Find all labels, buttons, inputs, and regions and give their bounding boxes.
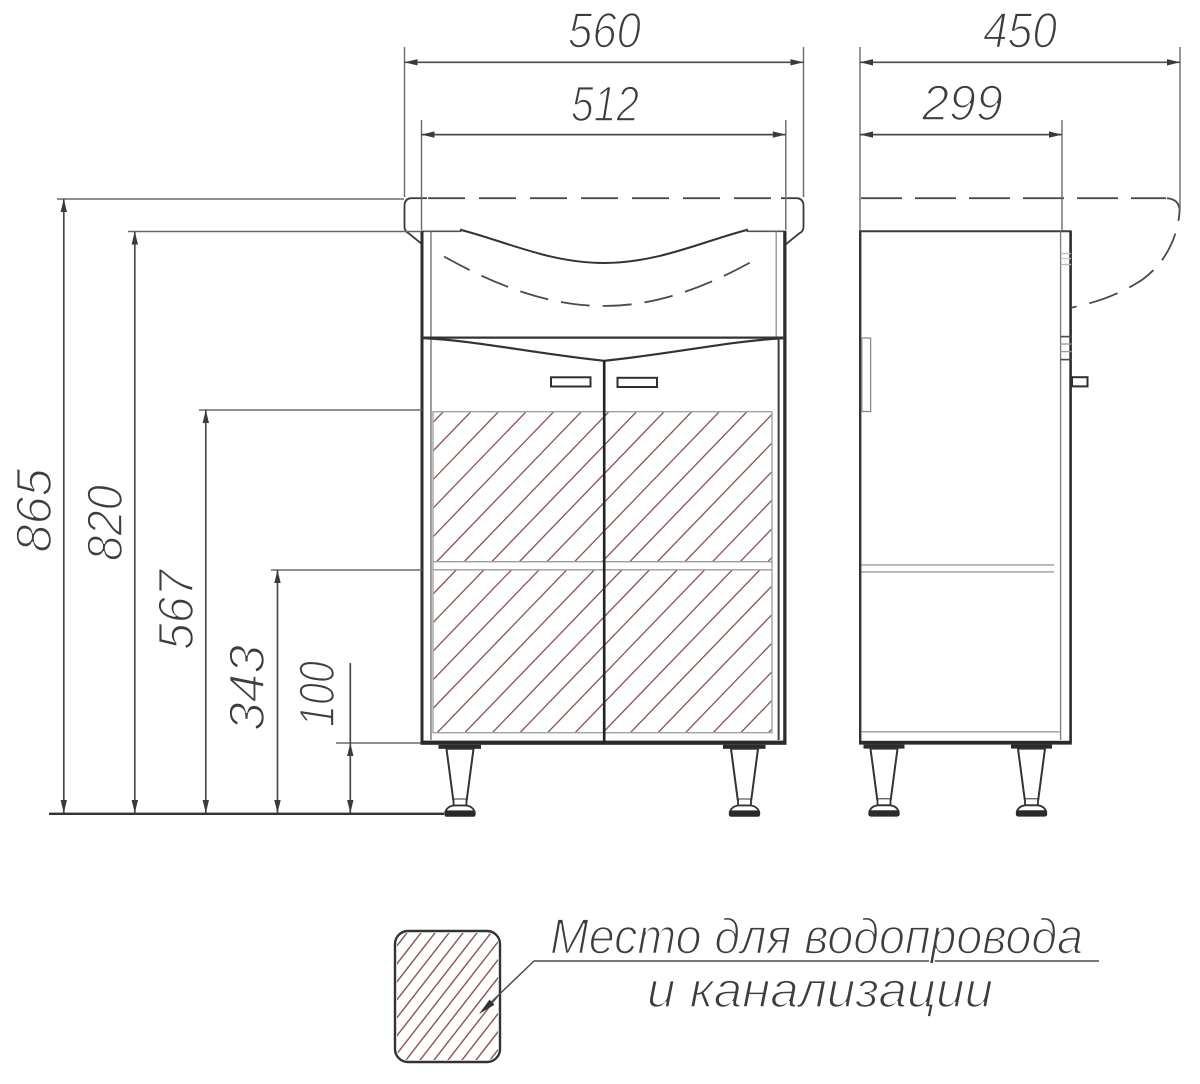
svg-text:567: 567 (148, 568, 204, 650)
svg-text:865: 865 (6, 468, 62, 552)
svg-text:343: 343 (219, 645, 275, 731)
svg-text:Место для водопровода: Место для водопровода (550, 909, 1083, 965)
svg-text:820: 820 (77, 485, 133, 561)
svg-text:и канализации: и канализации (647, 962, 993, 1018)
svg-text:450: 450 (983, 3, 1057, 59)
svg-text:560: 560 (568, 3, 641, 59)
svg-text:512: 512 (571, 76, 639, 132)
svg-text:299: 299 (921, 75, 1003, 131)
svg-text:100: 100 (289, 661, 345, 727)
